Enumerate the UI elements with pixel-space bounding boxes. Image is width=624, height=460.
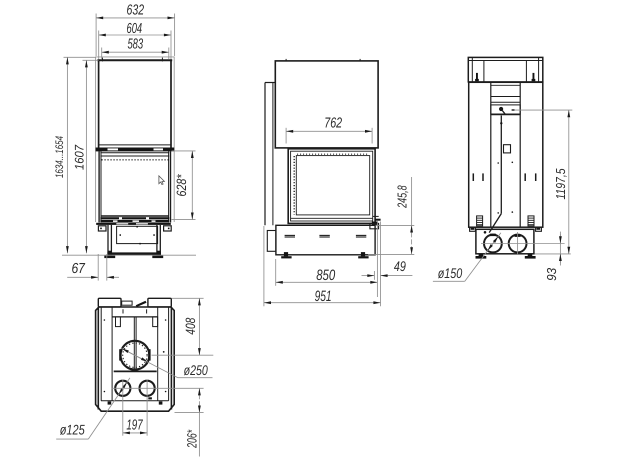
svg-text:ø250: ø250 (184, 362, 208, 378)
svg-text:49: 49 (394, 258, 406, 274)
svg-text:93: 93 (544, 267, 559, 281)
svg-text:762: 762 (324, 116, 342, 132)
svg-text:67: 67 (71, 261, 85, 277)
svg-text:1197,5: 1197,5 (553, 168, 568, 200)
svg-text:197: 197 (126, 418, 143, 434)
svg-text:206*: 206* (185, 429, 200, 448)
svg-text:ø150: ø150 (438, 265, 463, 281)
svg-text:408: 408 (183, 317, 198, 334)
svg-text:604: 604 (127, 21, 143, 37)
svg-text:628*: 628* (174, 174, 189, 197)
svg-text:850: 850 (316, 267, 335, 284)
svg-text:ø125: ø125 (60, 421, 85, 437)
svg-text:1634...1654: 1634...1654 (54, 136, 66, 178)
svg-text:951: 951 (315, 288, 332, 305)
svg-text:1607: 1607 (72, 144, 86, 170)
svg-text:583: 583 (127, 37, 143, 53)
svg-text:632: 632 (127, 3, 145, 19)
svg-text:245,8: 245,8 (395, 185, 410, 209)
